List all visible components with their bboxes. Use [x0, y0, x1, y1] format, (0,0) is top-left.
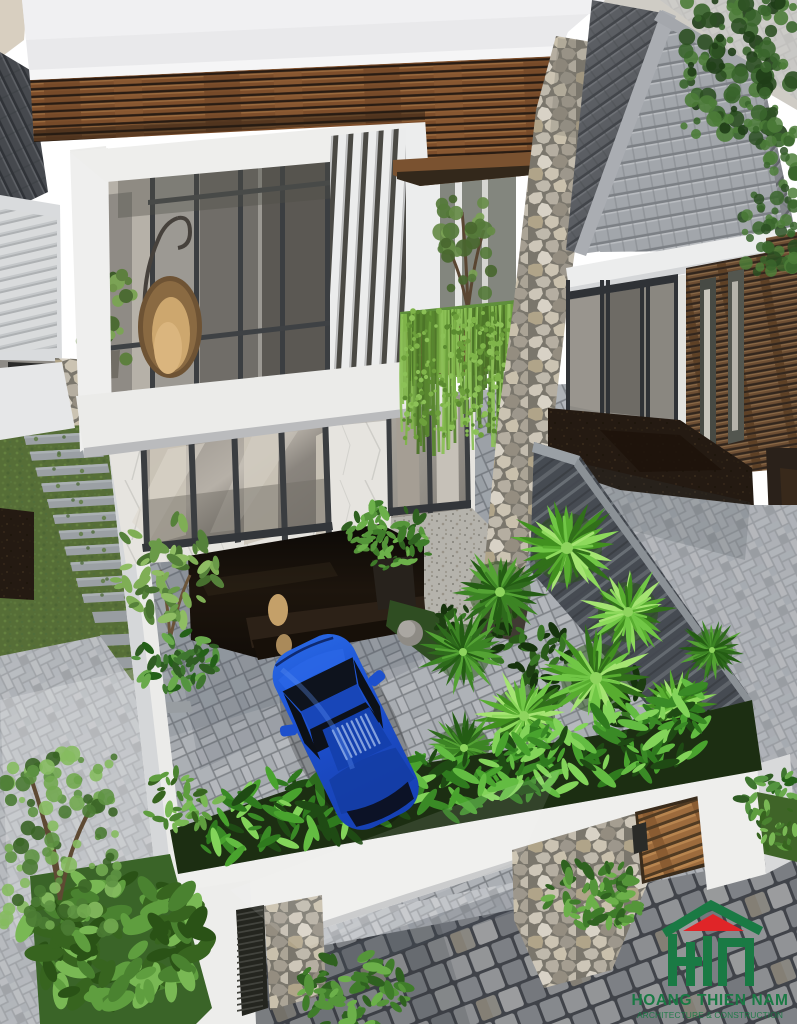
svg-text:ARCHITECTURE & CONSTRUCTION: ARCHITECTURE & CONSTRUCTION	[637, 1010, 783, 1020]
svg-text:HOANG THIEN NAM: HOANG THIEN NAM	[631, 992, 788, 1009]
